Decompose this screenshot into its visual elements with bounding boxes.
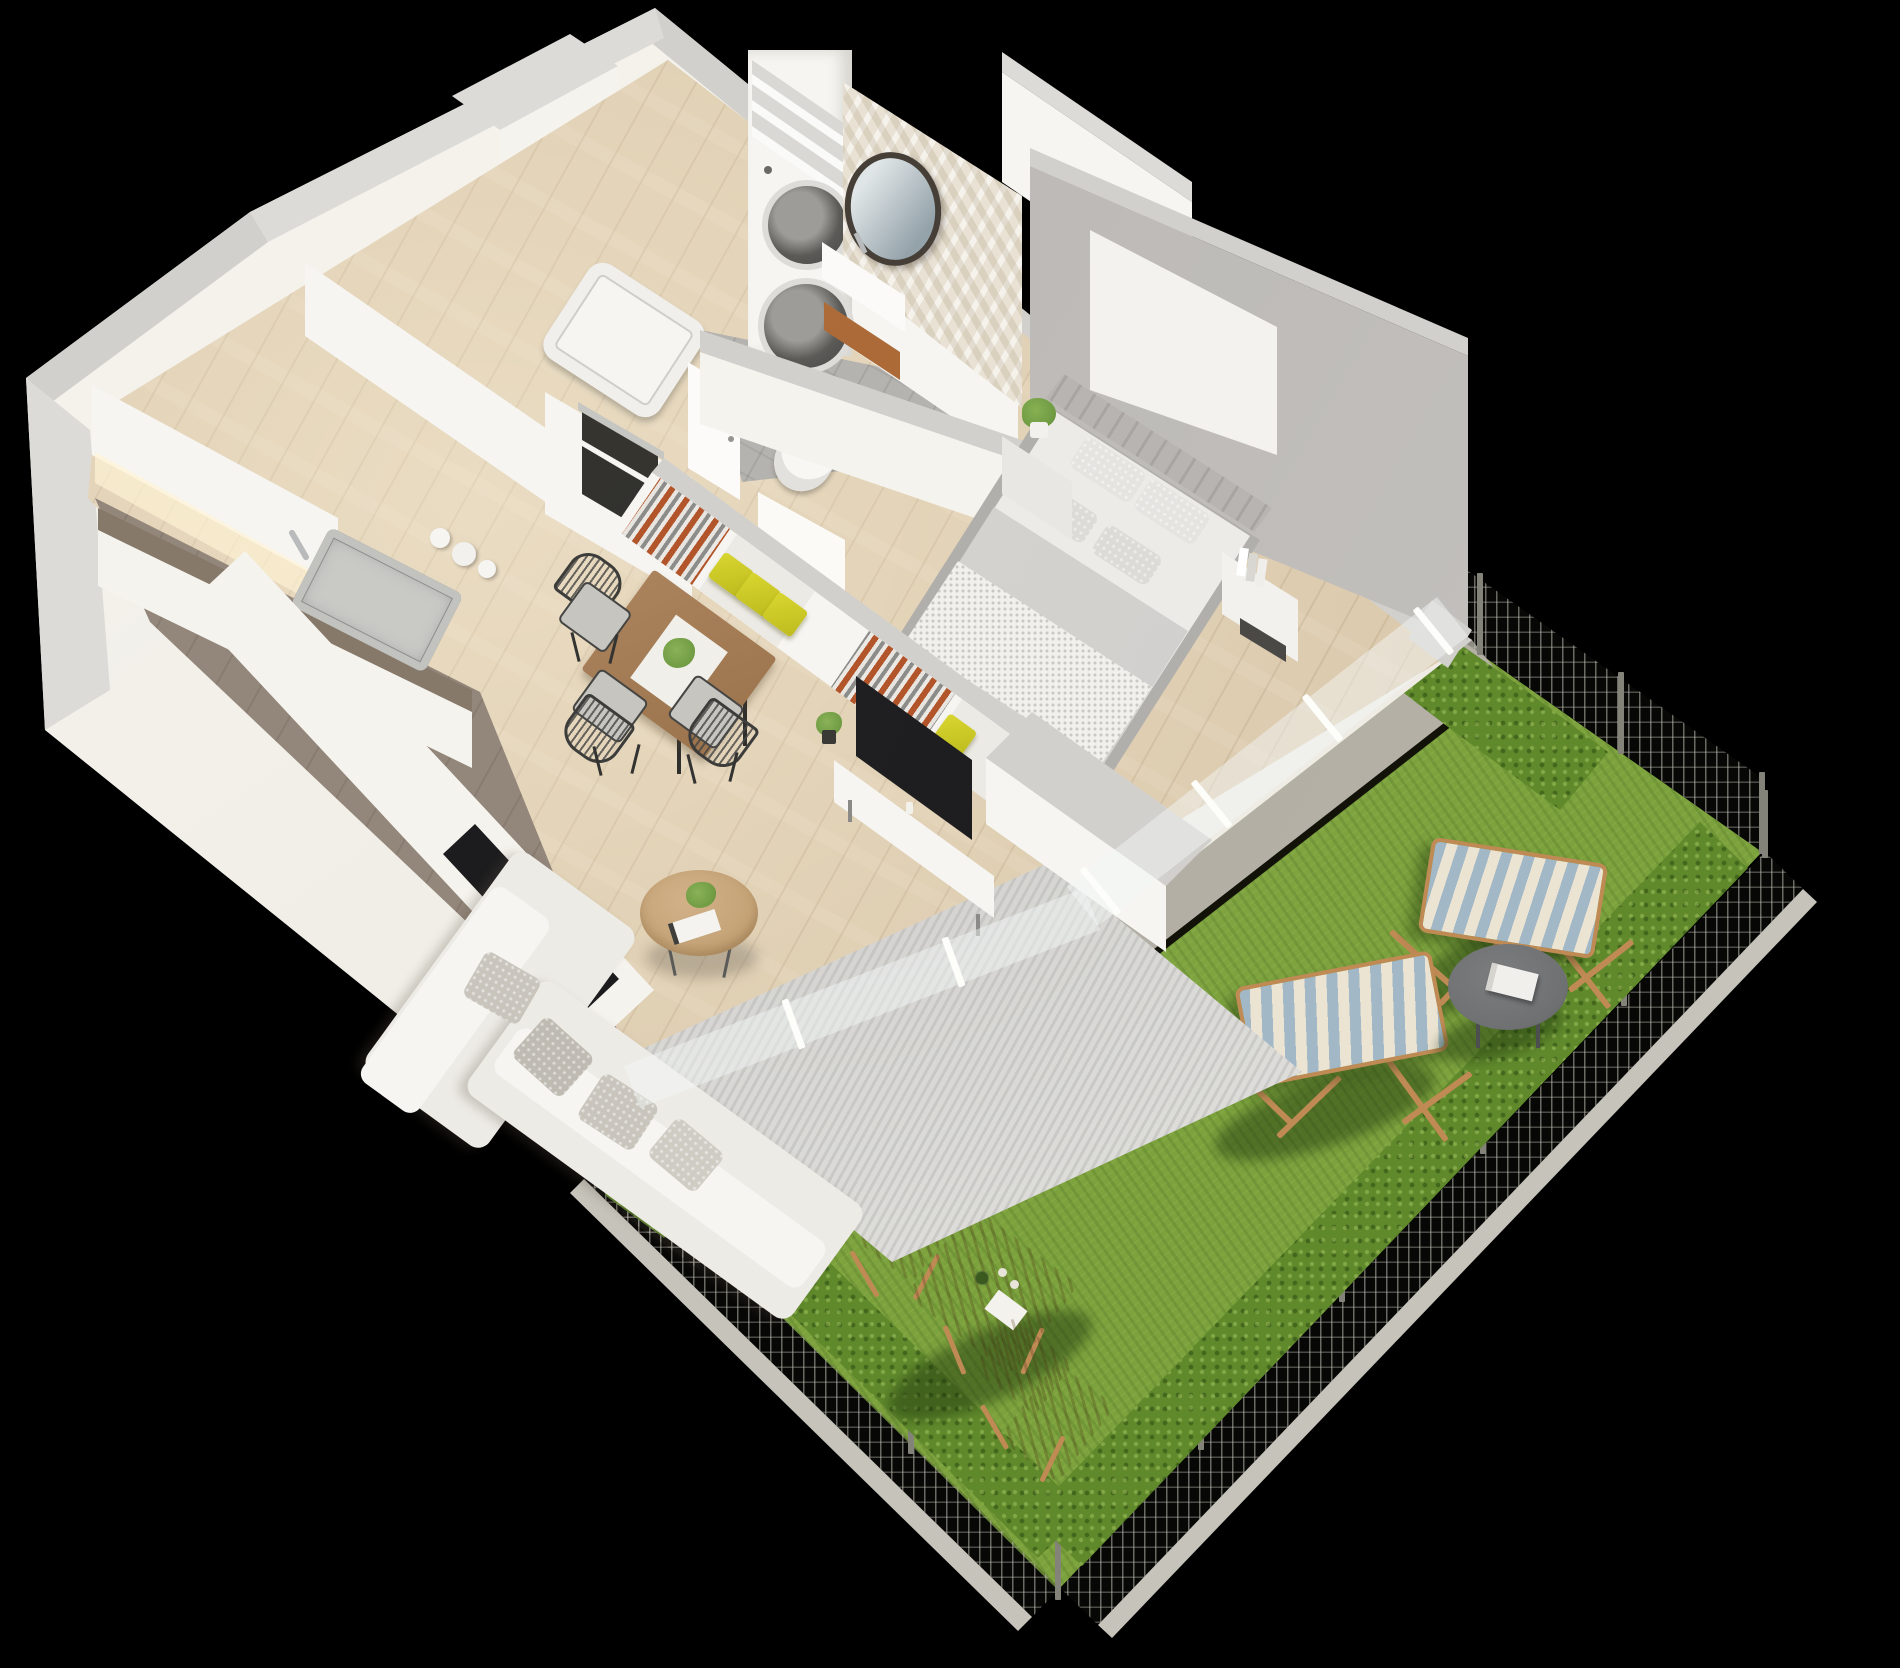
bistro-chair-leg bbox=[849, 1250, 879, 1298]
vase bbox=[452, 542, 476, 566]
bistro-chair-leg bbox=[980, 1404, 1009, 1450]
vase bbox=[430, 528, 450, 548]
tv-bench-leg bbox=[848, 800, 852, 822]
deck-chair-leg bbox=[1276, 1075, 1342, 1139]
deck-chair-sling bbox=[1418, 837, 1609, 960]
dining-chair bbox=[652, 668, 747, 783]
glass bbox=[998, 1268, 1007, 1277]
glass bbox=[1010, 1280, 1019, 1289]
washer-dial bbox=[764, 166, 772, 174]
bottle bbox=[976, 1272, 988, 1284]
fence-post bbox=[1477, 573, 1483, 655]
garden-side-table bbox=[1448, 944, 1572, 1054]
fence-post bbox=[1618, 672, 1624, 754]
bistro-chair-2 bbox=[962, 1316, 1102, 1491]
vase bbox=[478, 560, 496, 578]
bathroom-door-handle bbox=[728, 436, 734, 442]
dining-chair bbox=[540, 556, 635, 666]
chair-leg bbox=[686, 754, 696, 784]
fence-post bbox=[1762, 790, 1768, 858]
plant-pot bbox=[1030, 422, 1048, 438]
tv-plant-pot bbox=[822, 730, 836, 744]
chair-leg bbox=[630, 744, 640, 774]
coffee-table bbox=[640, 870, 765, 985]
candle bbox=[906, 802, 913, 814]
dining-chair bbox=[556, 662, 651, 777]
floorplan-scene bbox=[0, 0, 1900, 1668]
